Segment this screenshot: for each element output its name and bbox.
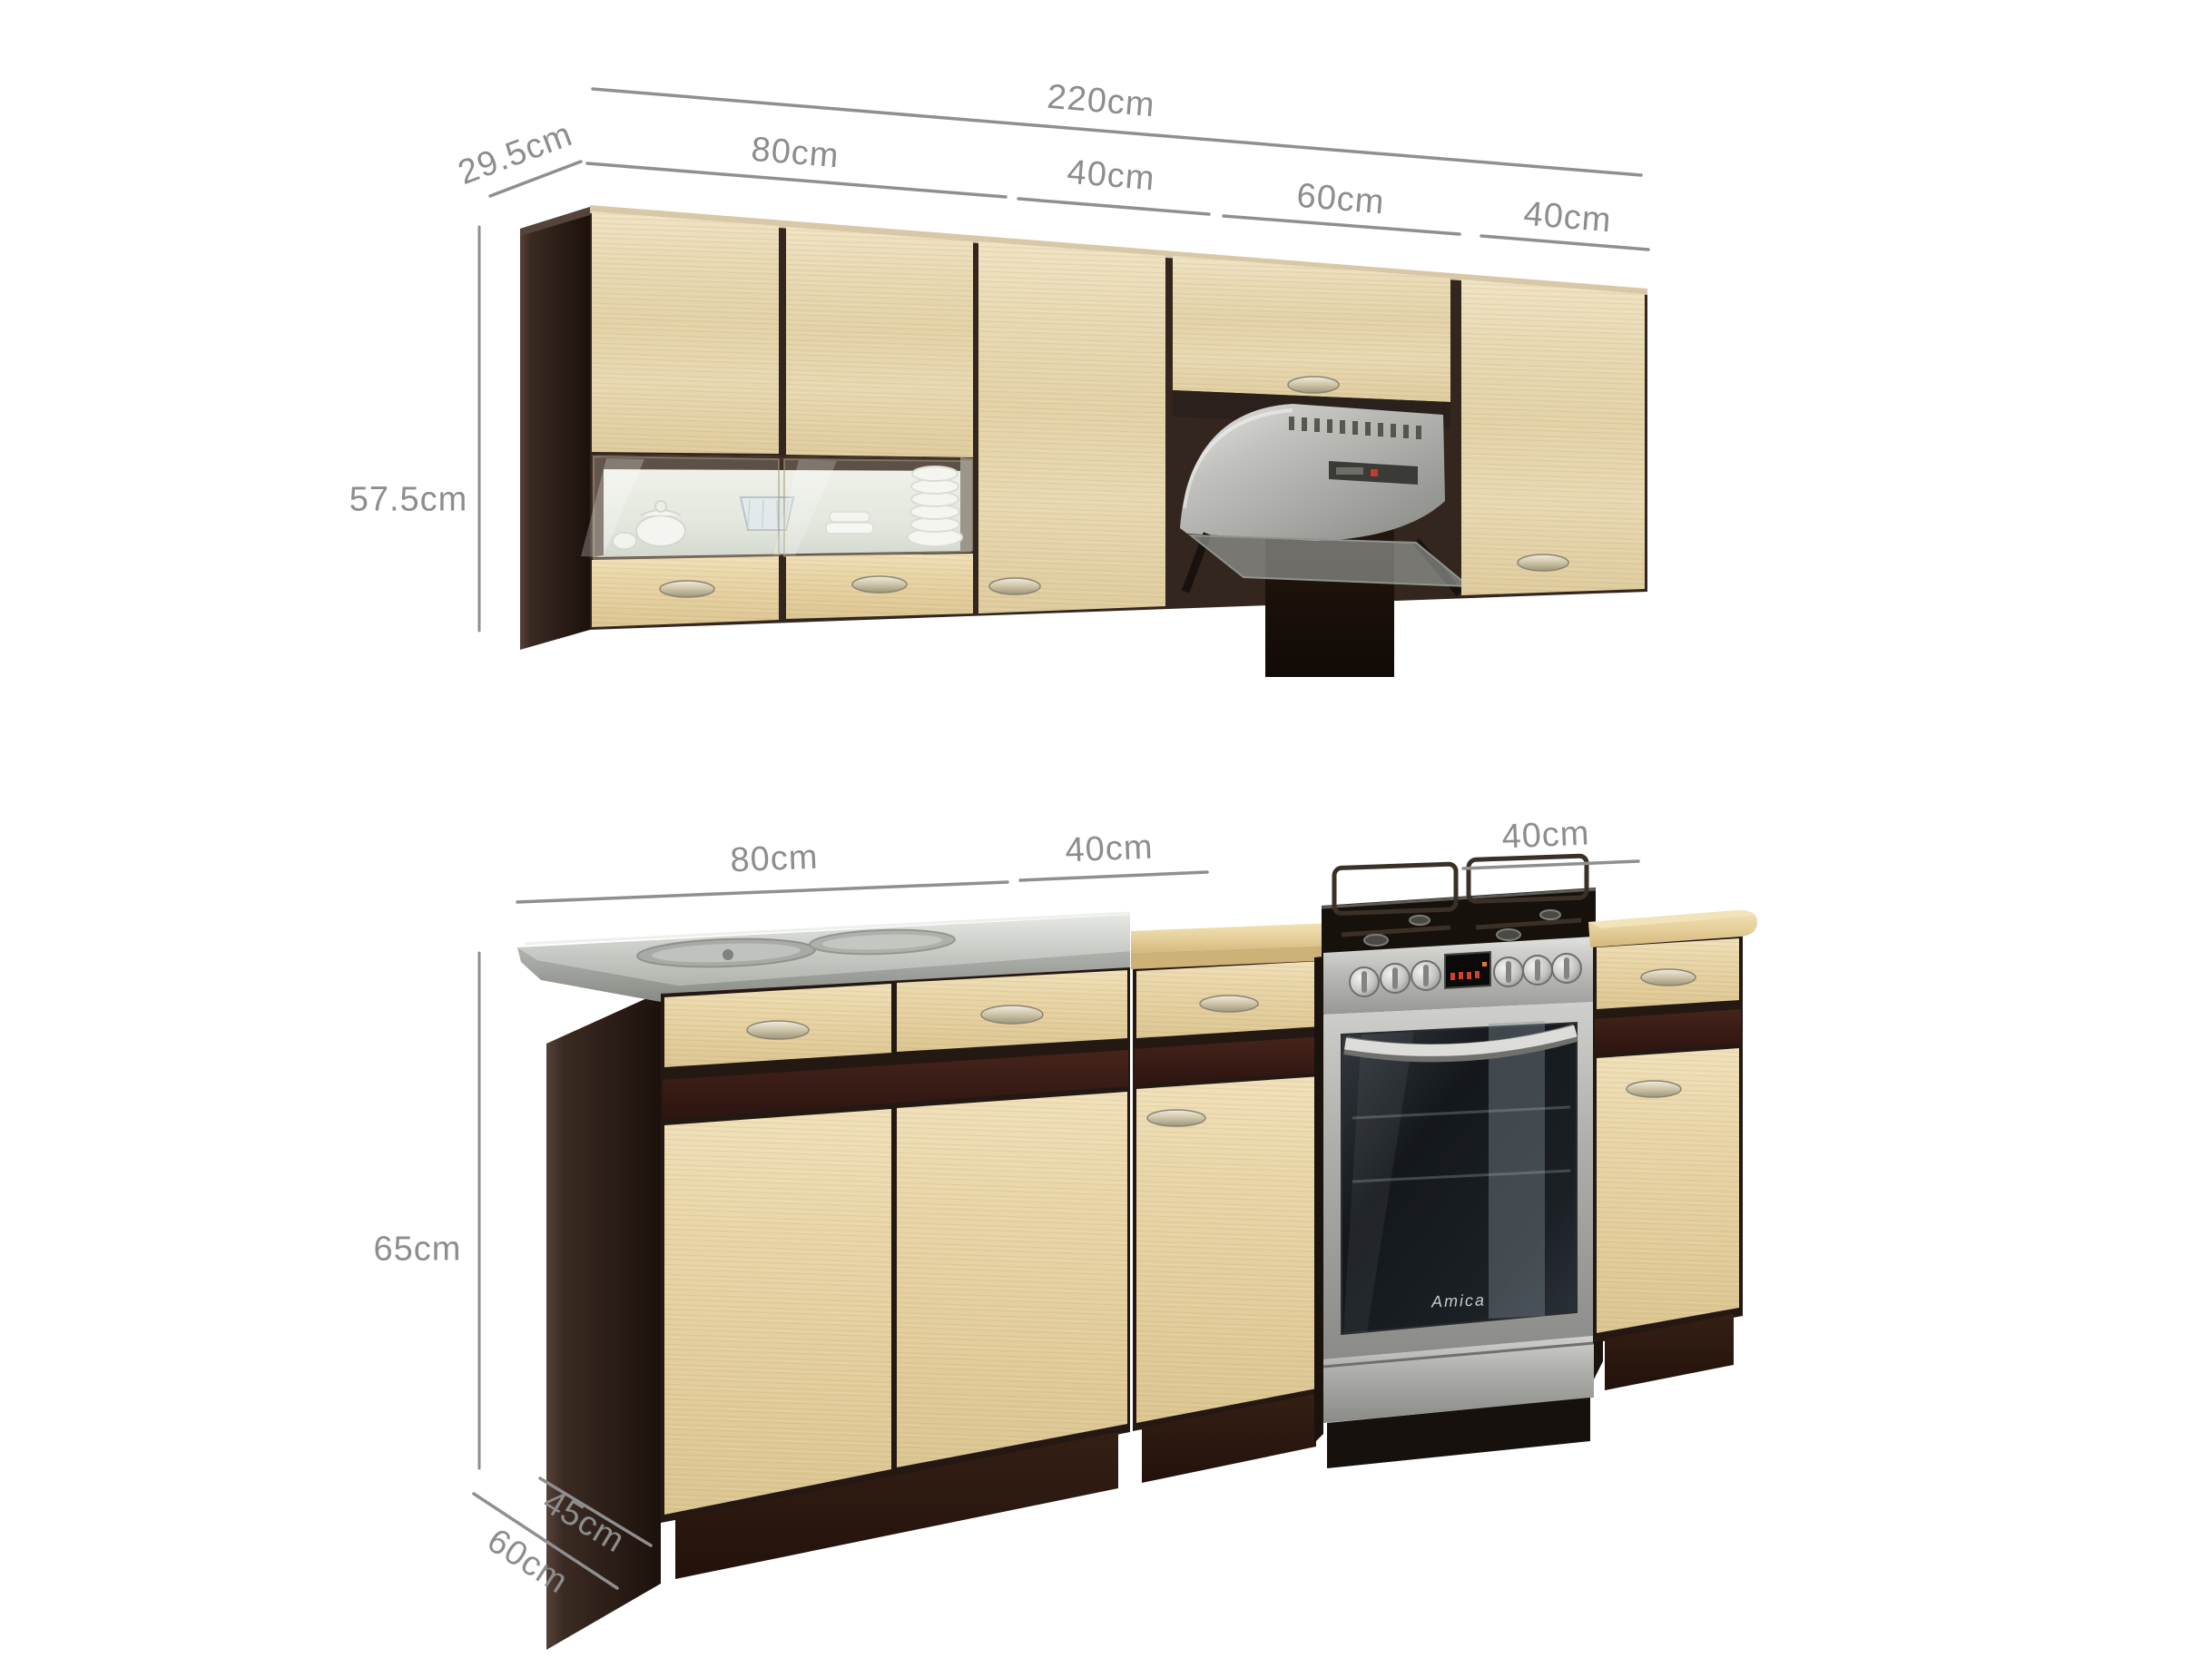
dim-label-base-40b: 40cm <box>1501 814 1591 857</box>
dim-label-wall-height: 57.5cm <box>349 481 468 520</box>
wall-side-panel <box>520 207 590 650</box>
freestanding-cooker <box>1314 856 1603 1468</box>
dim-line-wall-40a <box>1018 199 1209 214</box>
door-handle <box>1147 1110 1205 1126</box>
cooker-knob <box>1381 964 1410 993</box>
base-cabinet-assembly <box>517 856 1757 1650</box>
door-handle <box>852 576 907 593</box>
door-handle <box>1627 1081 1681 1097</box>
cooker-knob <box>1523 956 1552 985</box>
cooker-knob <box>1350 967 1379 996</box>
cooker-knob <box>1494 957 1523 986</box>
kitchen-set-illustration <box>0 0 2212 1658</box>
dim-label-base-40a: 40cm <box>1065 829 1155 871</box>
cooker-knob <box>1411 961 1440 990</box>
dim-label-base-height: 65cm <box>374 1231 462 1270</box>
door-handle <box>1288 377 1339 393</box>
oven-brand-logo: Amica <box>1431 1290 1487 1311</box>
drawer-handle <box>1641 969 1696 986</box>
dim-label-wall-60: 60cm <box>1295 177 1386 223</box>
base-cabinet-40-right <box>1588 910 1757 1390</box>
product-dimension-diagram: 220cm 29.5cm 80cm 40cm 60cm 40cm 57.5cm … <box>0 0 2212 1658</box>
drawer-handle <box>747 1021 809 1039</box>
dim-line-base-40b <box>1463 861 1638 868</box>
dim-line-base-40a <box>1020 872 1207 880</box>
dim-label-wall-40b: 40cm <box>1522 195 1613 241</box>
door-handle <box>989 578 1040 594</box>
dim-line-wall-40b <box>1481 236 1648 250</box>
glass-pane <box>581 456 971 559</box>
dim-label-base-80: 80cm <box>730 839 820 881</box>
base-sink-cabinet <box>661 967 1130 1579</box>
dim-line-base-80 <box>517 882 1008 902</box>
dim-label-wall-40a: 40cm <box>1066 153 1156 200</box>
dim-label-wall-80: 80cm <box>750 131 841 177</box>
cooker-display <box>1445 952 1490 988</box>
drawer-handle <box>1200 996 1258 1012</box>
door-handle <box>1518 554 1568 571</box>
drawer-handle <box>981 1006 1043 1024</box>
door-handle <box>660 581 714 597</box>
base-cabinet-40 <box>1131 923 1332 1483</box>
glass-display <box>581 455 973 559</box>
cooker-knob <box>1552 954 1581 983</box>
wall-cabinet-assembly <box>520 205 1647 677</box>
